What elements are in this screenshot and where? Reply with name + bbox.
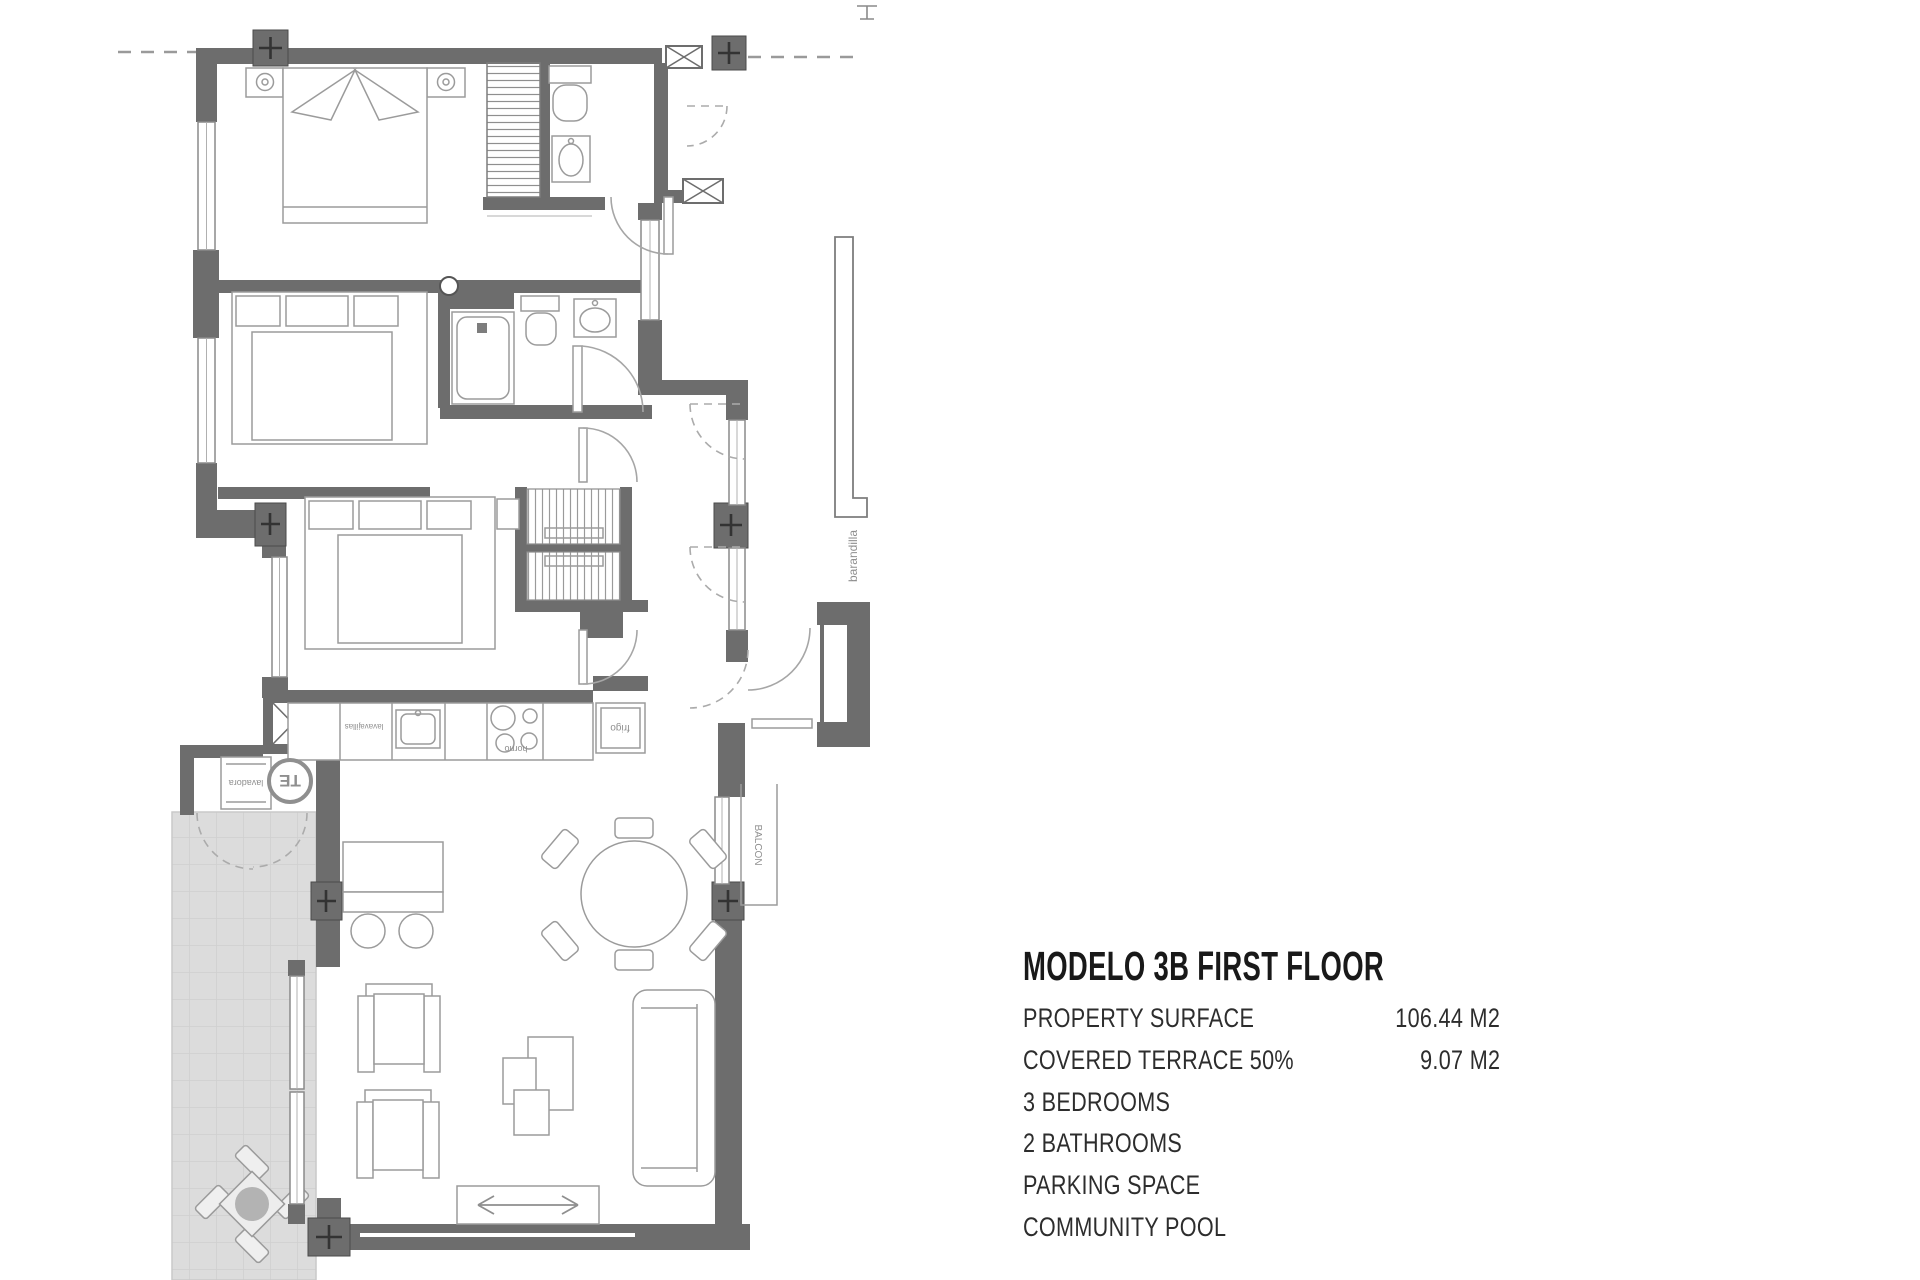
door-living <box>579 630 637 684</box>
survey-marker-icon <box>857 6 877 19</box>
page: lavavajillas horno frigo lavadora TE <box>0 0 1920 1280</box>
sink <box>552 136 590 182</box>
spec-label: COVERED TERRACE 50% <box>1023 1046 1294 1074</box>
washer-label: lavadora <box>229 778 264 788</box>
dining-table <box>540 818 728 970</box>
tv-console <box>457 1186 599 1224</box>
spec-label: PARKING SPACE <box>1023 1171 1200 1199</box>
double-bed <box>232 292 427 444</box>
armchair <box>357 1090 439 1178</box>
kitchen: lavavajillas horno frigo <box>288 703 645 760</box>
oven-label: horno <box>504 744 527 754</box>
bedroom-3 <box>305 497 519 649</box>
spec-panel: MODELO 3B FIRST FLOOR PROPERTY SURFACE 1… <box>1023 946 1503 987</box>
floor-plan: lavavajillas horno frigo lavadora TE <box>0 0 1920 1280</box>
double-bed <box>305 497 495 649</box>
spec-row-bedrooms: 3 BEDROOMS <box>1023 1088 1500 1118</box>
spec-label: 3 BEDROOMS <box>1023 1088 1170 1116</box>
nightstand <box>427 68 465 97</box>
door-bedroom3 <box>579 428 637 482</box>
bedroom-2 <box>232 277 458 444</box>
laundry: lavadora TE <box>221 757 311 809</box>
spec-label: PROPERTY SURFACE <box>1023 1004 1254 1032</box>
spec-row-pool: COMMUNITY POOL <box>1023 1213 1500 1243</box>
spec-label: 2 BATHROOMS <box>1023 1129 1182 1157</box>
shower <box>452 312 514 404</box>
spec-value: 106.44 M2 <box>1395 1004 1500 1032</box>
double-bed <box>283 68 427 223</box>
spec-row-parking: PARKING SPACE <box>1023 1171 1500 1201</box>
bathroom-2 <box>452 296 643 412</box>
water-heater-label: TE <box>279 771 301 790</box>
bathroom-1 <box>549 66 591 182</box>
living-dining <box>343 818 728 1224</box>
coffee-tables <box>503 1037 573 1135</box>
spec-row-covered-terrace: COVERED TERRACE 50% 9.07 M2 <box>1023 1046 1500 1076</box>
dishwasher-label: lavavajillas <box>345 722 384 731</box>
sink <box>574 299 616 337</box>
armchair <box>358 984 440 1072</box>
railing-label: barandilla <box>846 530 860 582</box>
balcony-label: BALCON <box>752 824 763 865</box>
staircase <box>527 489 620 600</box>
toilet <box>521 296 559 345</box>
column <box>440 277 458 295</box>
balcony: BALCON <box>741 784 777 905</box>
toilet <box>549 66 591 121</box>
sideboard-desk <box>343 842 443 948</box>
nightstand <box>246 68 283 97</box>
spec-row-bathrooms: 2 BATHROOMS <box>1023 1129 1500 1159</box>
spec-row-property-surface: PROPERTY SURFACE 106.44 M2 <box>1023 1004 1500 1034</box>
spec-label: COMMUNITY POOL <box>1023 1213 1226 1241</box>
nightstand <box>497 499 519 529</box>
door-bath2 <box>573 346 643 412</box>
kitchen-sink <box>396 710 440 748</box>
sofa <box>633 990 715 1186</box>
railing: barandilla <box>835 237 867 582</box>
plan-title: MODELO 3B FIRST FLOOR <box>1023 946 1345 987</box>
wardrobe <box>487 63 540 197</box>
fridge-label: frigo <box>610 722 630 733</box>
entry-door <box>690 628 812 728</box>
spec-value: 9.07 M2 <box>1420 1046 1500 1074</box>
